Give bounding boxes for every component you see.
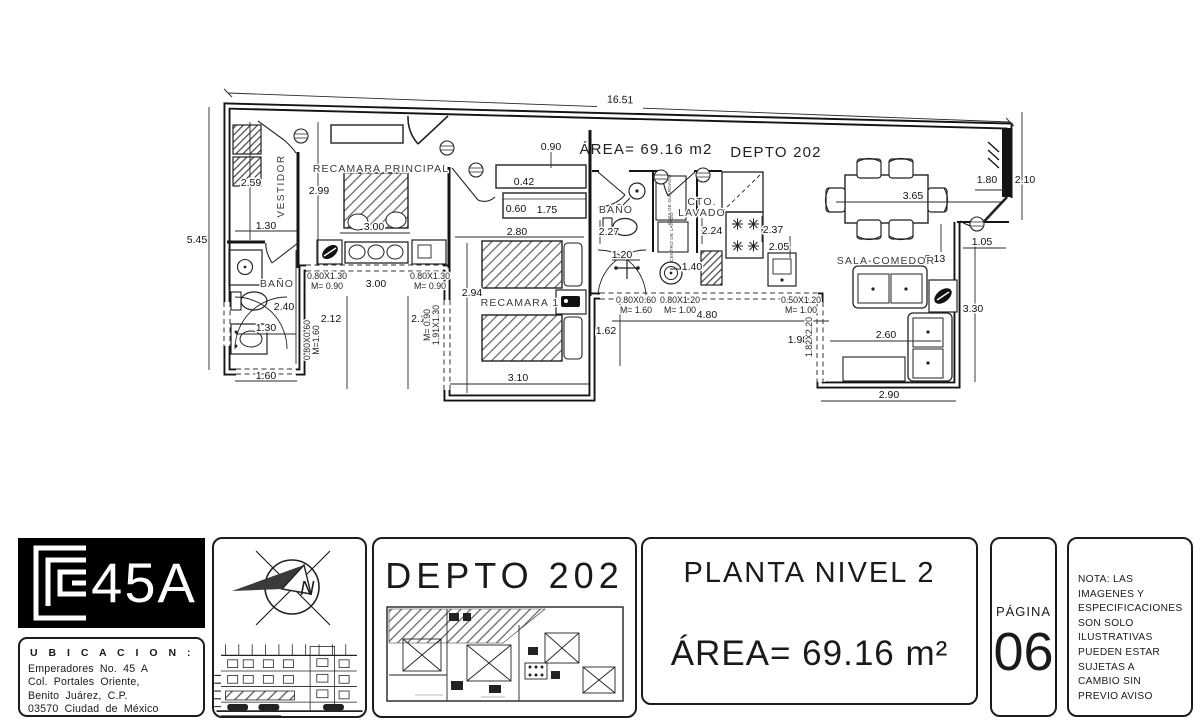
plan-unit-text: DEPTO 202 <box>730 144 821 161</box>
dim-3-30: 3.30 <box>963 303 984 315</box>
window-label: 0.80X0.60 <box>616 295 656 305</box>
dim-1-75: 1.75 <box>537 204 558 216</box>
dim-2-05: 2.05 <box>769 241 790 253</box>
room-label-banio-1: BAÑO <box>260 277 294 290</box>
dim-1-62: 1.62 <box>596 325 617 337</box>
room-label-recamara-1: RECAMARA 1 <box>481 297 560 309</box>
dim-0-90: 0.90 <box>541 141 562 153</box>
window-label: M= 0.90 <box>311 281 343 291</box>
dim-2-40: 2.40 <box>274 301 295 313</box>
window-label: M=1.60 <box>311 325 321 355</box>
dim-3-65: 3.65 <box>903 190 924 202</box>
depto-panel: DEPTO 202 <box>372 537 637 718</box>
dim-2-24: 2.24 <box>702 225 723 237</box>
room-label-sala-comedor: SALA-COMEDOR <box>837 255 935 267</box>
window-label: 0.80X1.30 <box>307 271 347 281</box>
nota-line: NOTA: LAS <box>1078 573 1191 588</box>
dim-0-42: 0.42 <box>514 176 535 188</box>
compass-n-letter: N <box>300 578 315 600</box>
window-label: 0.50X1.20 <box>781 295 821 305</box>
window-label: 0.80X1.20 <box>660 295 700 305</box>
dim-2-80: 2.80 <box>507 226 528 238</box>
dim-2-10: 2.10 <box>1015 174 1036 186</box>
dim-1-30-a: 1.30 <box>256 220 277 232</box>
headboard <box>331 125 403 143</box>
pagina-label: PÁGINA <box>992 604 1055 619</box>
dim-1-05: 1.05 <box>972 236 993 248</box>
dim-2-27: 2.27 <box>599 226 620 238</box>
pillow <box>564 317 582 359</box>
planta-panel: PLANTA NIVEL 2 ÁREA= 69.16 m² <box>641 537 978 705</box>
ubicacion-title: U B I C A C I O N : <box>30 647 195 659</box>
floor-plan: 16.51 5.45 2.59 2.99 1.30 3.00 3.00 0.90… <box>0 0 1200 533</box>
dim-2-94: 2.94 <box>462 287 483 299</box>
room-label-banio-2: BAÑO <box>599 203 633 216</box>
dim-1-60: 1.60 <box>256 370 277 382</box>
room-label-cto-lavado: LAVADO <box>678 207 726 219</box>
label-centro-lavado: CENTRO DE LAVADO <box>669 212 674 262</box>
dim-0-60: 0.60 <box>506 203 527 215</box>
fridge <box>701 251 722 285</box>
dim-4-80: 4.80 <box>697 309 718 321</box>
planta-nivel-title: PLANTA NIVEL 2 <box>643 557 976 590</box>
nota-line: ILUSTRATIVAS <box>1078 631 1191 646</box>
dim-2-60: 2.60 <box>876 329 897 341</box>
vestidor-shelf <box>233 125 261 154</box>
sofa-1 <box>853 266 927 308</box>
nota-line: SON SOLO <box>1078 617 1191 632</box>
depto-title: DEPTO 202 <box>374 555 635 597</box>
nota-panel: NOTA: LAS IMAGENES Y ESPECIFICACIONES SO… <box>1067 537 1193 717</box>
north-compass: N <box>214 539 365 639</box>
tv-icon <box>561 296 580 307</box>
dim-1-40: 1.40 <box>682 261 703 273</box>
nota-line: ESPECIFICACIONES <box>1078 602 1191 617</box>
nota-line: CAMBIO SIN <box>1078 675 1191 690</box>
nota-line: SUJETAS A <box>1078 661 1191 676</box>
dim-1-80: 1.80 <box>977 174 998 186</box>
ubicacion-line: Emperadores No. 45 A <box>28 663 195 676</box>
window-label: M= 1.00 <box>785 305 817 315</box>
ubicacion-line: 03570 Ciudad de México <box>28 703 195 716</box>
dim-1-30-b: 1.30 <box>256 322 277 334</box>
key-plan <box>385 605 625 705</box>
window-label: 1.91X1.30 <box>431 305 441 345</box>
bed-2 <box>482 315 562 361</box>
window-label: 1.82X2.20 <box>804 317 814 357</box>
window-label: M= 0.90 <box>414 281 446 291</box>
toilet <box>241 292 267 310</box>
room-label-vestidor: VESTIDOR <box>276 154 287 217</box>
dim-2-90: 2.90 <box>879 389 900 401</box>
dim-5-45: 5.45 <box>187 234 208 246</box>
logo-text: 45A <box>84 540 204 626</box>
ubicacion-line: Benito Juárez, C.P. <box>28 690 195 703</box>
ubicacion-line: Col. Portales Oriente, <box>28 676 195 689</box>
dim-2-12: 2.12 <box>321 313 342 325</box>
nota-line: PREVIO AVISO <box>1078 690 1191 705</box>
pagina-number: 06 <box>992 621 1055 683</box>
dim-2-59: 2.59 <box>241 177 262 189</box>
compass-elevation-panel: N <box>212 537 367 718</box>
dim-3-10: 3.10 <box>508 372 529 384</box>
nota-line: PUEDEN ESTAR <box>1078 646 1191 661</box>
pillow <box>564 243 582 286</box>
stove <box>726 212 763 258</box>
dim-3-00-b: 3.00 <box>366 278 387 290</box>
dim-16-51: 16.51 <box>607 94 634 107</box>
dim-3-00-a: 3.00 <box>364 221 385 233</box>
area-title: ÁREA= 69.16 m² <box>643 634 976 674</box>
window-label: 0.80X1.30 <box>410 271 450 281</box>
dim-2-37: 2.37 <box>763 224 784 236</box>
dim-1-20: 1.20 <box>612 249 633 261</box>
dim-2-99: 2.99 <box>309 185 330 197</box>
pagina-panel: PÁGINA 06 <box>990 537 1057 717</box>
coffee-table <box>843 357 905 381</box>
window-label: M= 1.00 <box>664 305 696 315</box>
room-label-recamara-principal: RECAMARA PRINCIPAL <box>313 163 449 175</box>
ubicacion-box: U B I C A C I O N : Emperadores No. 45 A… <box>18 637 205 717</box>
building-elevation <box>214 642 365 720</box>
toilet-tank <box>231 292 241 310</box>
drawing-sheet: 16.51 5.45 2.59 2.99 1.30 3.00 3.00 0.90… <box>0 0 1200 723</box>
nota-line: IMAGENES Y <box>1078 588 1191 603</box>
plan-area-text: ÁREA= 69.16 m2 <box>579 141 712 158</box>
window-label: M= 1.60 <box>620 305 652 315</box>
bed-1 <box>482 241 562 288</box>
